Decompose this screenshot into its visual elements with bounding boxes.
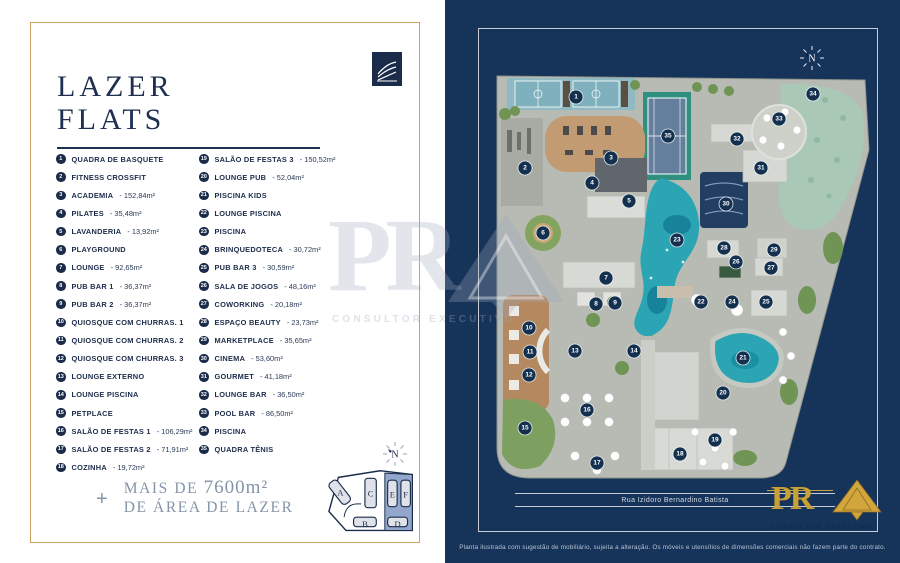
svg-text:34: 34 — [809, 91, 817, 98]
legend-number-badge: 21 — [199, 191, 209, 201]
legend-column-right: 19SALÃO DE FESTAS 3- 150,52m²20LOUNGE PU… — [199, 150, 369, 477]
legend-item: 9PUB BAR 2- 36,37m² — [56, 295, 199, 313]
area-claim-prefix: MAIS DE — [124, 480, 204, 497]
map-marker-29: 29 — [767, 243, 781, 257]
svg-text:11: 11 — [527, 349, 534, 356]
svg-text:35: 35 — [664, 133, 672, 140]
legend-item: 26SALA DE JOGOS- 48,16m² — [199, 277, 369, 295]
legend-label: PLAYGROUND — [72, 245, 126, 254]
legend-item: 15PETPLACE — [56, 404, 199, 422]
legend-item: 35QUADRA TÊNIS — [199, 440, 369, 458]
brand-logo — [372, 52, 402, 86]
legend-item: 6PLAYGROUND — [56, 241, 199, 259]
map-marker-24: 24 — [725, 295, 739, 309]
legend-item: 20LOUNGE PUB- 52,04m² — [199, 168, 369, 186]
legend-area-value: - 35,65m² — [280, 336, 312, 345]
svg-text:9: 9 — [613, 300, 617, 307]
legend-item: 30CINEMA- 53,60m² — [199, 350, 369, 368]
legend-column-left: 1QUADRA DE BASQUETE2FITNESS CROSSFIT3ACA… — [56, 150, 199, 477]
legend-number-badge: 24 — [199, 245, 209, 255]
legend-area-value: - 30,72m² — [289, 245, 321, 254]
legend-area-value: - 23,73m² — [287, 318, 319, 327]
legend-label: LOUNGE — [72, 263, 105, 272]
legend-area-value: - 92,65m² — [111, 263, 143, 272]
map-marker-27: 27 — [764, 261, 778, 275]
legend-item: 10QUIOSQUE COM CHURRAS. 1 — [56, 313, 199, 331]
legend-item: 1QUADRA DE BASQUETE — [56, 150, 199, 168]
legend-item: 24BRINQUEDOTECA- 30,72m² — [199, 241, 369, 259]
legend-area-value: - 48,16m² — [284, 282, 316, 291]
legend-label: BRINQUEDOTECA — [215, 245, 284, 254]
legend-label: FITNESS CROSSFIT — [72, 173, 147, 182]
title-divider — [57, 147, 320, 149]
plus-sign: + — [96, 488, 108, 511]
map-marker-1: 1 — [569, 90, 583, 104]
legend-area-value: - 53,60m² — [251, 354, 283, 363]
legend-number-badge: 15 — [56, 408, 66, 418]
legend-number-badge: 4 — [56, 209, 66, 219]
map-marker-15: 15 — [518, 421, 532, 435]
legend-number-badge: 8 — [56, 281, 66, 291]
legend-number-badge: 5 — [56, 227, 66, 237]
legend-number-badge: 23 — [199, 227, 209, 237]
legend-label: LOUNGE EXTERNO — [72, 372, 145, 381]
gold-brand-logo: PR CONSULTOR EXECUTIVO — [771, 480, 891, 538]
legend-label: PUB BAR 2 — [72, 300, 114, 309]
svg-text:21: 21 — [739, 355, 747, 362]
amenities-legend: 1QUADRA DE BASQUETE2FITNESS CROSSFIT3ACA… — [56, 150, 369, 477]
keyplan-block-d: D — [395, 519, 401, 529]
legend-number-badge: 3 — [56, 191, 66, 201]
legend-area-value: - 152,84m² — [119, 191, 155, 200]
svg-text:24: 24 — [728, 299, 736, 306]
legend-number-badge: 27 — [199, 299, 209, 309]
keyplan-block-e: E — [390, 489, 395, 499]
legend-item: 14LOUNGE PISCINA — [56, 386, 199, 404]
legend-item: 32LOUNGE BAR- 36,50m² — [199, 386, 369, 404]
legend-label: SALÃO DE FESTAS 1 — [72, 427, 151, 436]
map-marker-23: 23 — [670, 233, 684, 247]
map-marker-11: 11 — [523, 345, 537, 359]
legend-item: 17SALÃO DE FESTAS 2- 71,91m² — [56, 440, 199, 458]
legend-number-badge: 7 — [56, 263, 66, 273]
legend-label: PISCINA — [215, 427, 247, 436]
compass-icon-left: N — [382, 441, 408, 467]
map-marker-25: 25 — [759, 295, 773, 309]
svg-text:5: 5 — [627, 198, 631, 205]
legend-area-value: - 36,50m² — [273, 390, 305, 399]
svg-text:4: 4 — [590, 180, 594, 187]
gold-logo-subtext: CONSULTOR EXECUTIVO — [771, 524, 889, 531]
area-claim-line2: DE ÁREA DE LAZER — [124, 498, 294, 517]
legend-item: 5LAVANDERIA- 13,92m² — [56, 223, 199, 241]
svg-text:27: 27 — [767, 265, 775, 272]
legend-area-value: - 30,59m² — [263, 263, 295, 272]
svg-text:3: 3 — [609, 155, 613, 162]
map-marker-31: 31 — [754, 161, 768, 175]
svg-text:16: 16 — [583, 407, 591, 414]
legend-item: 27COWORKING- 20,18m² — [199, 295, 369, 313]
legend-label: PUB BAR 3 — [215, 263, 257, 272]
map-marker-21: 21 — [736, 351, 750, 365]
svg-text:22: 22 — [697, 299, 705, 306]
legend-number-badge: 10 — [56, 318, 66, 328]
legend-area-value: - 86,50m² — [261, 409, 293, 418]
map-marker-30: 30 — [719, 197, 733, 211]
legend-label: COZINHA — [72, 463, 107, 472]
legend-item: 16SALÃO DE FESTAS 1- 106,29m² — [56, 422, 199, 440]
svg-text:6: 6 — [541, 230, 545, 237]
compass-north-label: N — [391, 450, 398, 461]
svg-text:13: 13 — [571, 348, 579, 355]
page-title: LAZER FLATS — [57, 70, 174, 136]
legend-area-value: - 52,04m² — [272, 173, 304, 182]
legend-item: 8PUB BAR 1- 36,37m² — [56, 277, 199, 295]
map-marker-12: 12 — [522, 368, 536, 382]
legend-number-badge: 16 — [56, 426, 66, 436]
legend-label: PISCINA — [215, 227, 247, 236]
legend-label: ESPAÇO BEAUTY — [215, 318, 281, 327]
legend-area-value: - 13,92m² — [127, 227, 159, 236]
legend-area-value: - 36,37m² — [120, 300, 152, 309]
legend-number-badge: 13 — [56, 372, 66, 382]
keyplan-block-b: B — [362, 519, 368, 529]
legend-item: 13LOUNGE EXTERNO — [56, 368, 199, 386]
keyplan-block-c: C — [368, 488, 374, 498]
legend-label: LOUNGE BAR — [215, 390, 267, 399]
legend-area-value: - 106,29m² — [157, 427, 193, 436]
legend-item: 3ACADEMIA- 152,84m² — [56, 186, 199, 204]
legend-item: 28ESPAÇO BEAUTY- 23,73m² — [199, 313, 369, 331]
legend-item: 19SALÃO DE FESTAS 3- 150,52m² — [199, 150, 369, 168]
svg-text:26: 26 — [732, 259, 740, 266]
map-marker-20: 20 — [716, 386, 730, 400]
legend-label: SALÃO DE FESTAS 3 — [215, 155, 294, 164]
legend-item: 22LOUNGE PISCINA — [199, 204, 369, 222]
map-marker-19: 19 — [708, 433, 722, 447]
svg-text:10: 10 — [525, 325, 533, 332]
svg-text:1: 1 — [574, 94, 578, 101]
legend-panel: LAZER FLATS 1QUADRA DE BASQUETE2FITNESS … — [0, 0, 445, 563]
legend-item: 4PILATES- 35,48m² — [56, 204, 199, 222]
map-marker-32: 32 — [730, 132, 744, 146]
area-claim-text: MAIS DE 7600m² DE ÁREA DE LAZER — [124, 478, 294, 517]
wave-logo-icon — [372, 52, 402, 86]
legend-label: PUB BAR 1 — [72, 282, 114, 291]
legend-item: 12QUIOSQUE COM CHURRAS. 3 — [56, 350, 199, 368]
svg-text:31: 31 — [757, 165, 765, 172]
legend-label: QUIOSQUE COM CHURRAS. 3 — [72, 354, 184, 363]
map-marker-8: 8 — [589, 297, 603, 311]
legend-item: 25PUB BAR 3- 30,59m² — [199, 259, 369, 277]
legend-number-badge: 20 — [199, 172, 209, 182]
svg-text:20: 20 — [719, 390, 727, 397]
map-marker-33: 33 — [772, 112, 786, 126]
legend-number-badge: 19 — [199, 154, 209, 164]
legend-item: 33POOL BAR- 86,50m² — [199, 404, 369, 422]
svg-text:12: 12 — [525, 372, 533, 379]
map-marker-9: 9 — [608, 296, 622, 310]
legend-label: QUIOSQUE COM CHURRAS. 1 — [72, 318, 184, 327]
page-title-line1: LAZER — [57, 70, 174, 103]
legend-label: PILATES — [72, 209, 104, 218]
legend-number-badge: 11 — [56, 336, 66, 346]
map-marker-26: 26 — [729, 255, 743, 269]
legend-number-badge: 30 — [199, 354, 209, 364]
legend-number-badge: 12 — [56, 354, 66, 364]
svg-text:19: 19 — [711, 437, 719, 444]
keyplan-block-f: F — [403, 489, 408, 499]
legend-number-badge: 26 — [199, 281, 209, 291]
legend-number-badge: 32 — [199, 390, 209, 400]
legend-label: COWORKING — [215, 300, 265, 309]
map-marker-13: 13 — [568, 344, 582, 358]
legend-item: 23PISCINA — [199, 223, 369, 241]
legend-label: POOL BAR — [215, 409, 256, 418]
svg-text:7: 7 — [604, 275, 608, 282]
legend-number-badge: 29 — [199, 336, 209, 346]
svg-text:2: 2 — [523, 165, 527, 172]
legend-area-value: - 71,91m² — [157, 445, 189, 454]
map-marker-7: 7 — [599, 271, 613, 285]
legend-item: 18COZINHA- 19,72m² — [56, 458, 199, 476]
legend-area-value: - 20,18m² — [270, 300, 302, 309]
legend-area-value: - 19,72m² — [113, 463, 145, 472]
legend-number-badge: 9 — [56, 299, 66, 309]
area-claim-line1: MAIS DE 7600m² — [124, 478, 294, 498]
area-claim-value: 7600m² — [204, 477, 268, 498]
svg-text:17: 17 — [593, 460, 601, 467]
legend-area-value: - 35,48m² — [110, 209, 142, 218]
legend-label: SALA DE JOGOS — [215, 282, 279, 291]
legend-item: 31GOURMET- 41,18m² — [199, 368, 369, 386]
legend-item: 21PISCINA KIDS — [199, 186, 369, 204]
map-marker-17: 17 — [590, 456, 604, 470]
svg-text:23: 23 — [673, 237, 681, 244]
legend-label: MARKETPLACE — [215, 336, 274, 345]
map-marker-4: 4 — [585, 176, 599, 190]
svg-text:18: 18 — [676, 451, 684, 458]
gold-logo-letters: PR — [771, 480, 812, 518]
gold-pyramid-icon — [831, 478, 883, 524]
svg-text:33: 33 — [775, 116, 783, 123]
masterplan-panel: N — [445, 0, 900, 563]
map-marker-6: 6 — [536, 226, 550, 240]
legend-label: SALÃO DE FESTAS 2 — [72, 445, 151, 454]
legend-number-badge: 6 — [56, 245, 66, 255]
legend-label: ACADEMIA — [72, 191, 114, 200]
map-marker-5: 5 — [622, 194, 636, 208]
map-marker-14: 14 — [627, 344, 641, 358]
legend-number-badge: 31 — [199, 372, 209, 382]
legend-area-value: - 36,37m² — [120, 282, 152, 291]
legend-number-badge: 22 — [199, 209, 209, 219]
map-marker-22: 22 — [694, 295, 708, 309]
svg-text:30: 30 — [722, 201, 730, 208]
map-marker-18: 18 — [673, 447, 687, 461]
keyplan-diagram: A B C D E F — [325, 466, 420, 538]
legend-number-badge: 18 — [56, 463, 66, 473]
legend-area-value: - 41,18m² — [260, 372, 292, 381]
legend-label: QUADRA DE BASQUETE — [72, 155, 164, 164]
legend-label: CINEMA — [215, 354, 246, 363]
legend-label: LOUNGE PUB — [215, 173, 267, 182]
svg-text:8: 8 — [594, 301, 598, 308]
map-marker-10: 10 — [522, 321, 536, 335]
map-marker-35: 35 — [661, 129, 675, 143]
page-title-line2: FLATS — [57, 103, 174, 136]
map-marker-16: 16 — [580, 403, 594, 417]
legend-item: 2FITNESS CROSSFIT — [56, 168, 199, 186]
svg-text:15: 15 — [521, 425, 529, 432]
map-marker-3: 3 — [604, 151, 618, 165]
legend-item: 34PISCINA — [199, 422, 369, 440]
legend-area-value: - 150,52m² — [300, 155, 336, 164]
legend-number-badge: 2 — [56, 172, 66, 182]
legend-number-badge: 35 — [199, 445, 209, 455]
legend-number-badge: 28 — [199, 318, 209, 328]
disclaimer-text: Planta ilustrada com sugestão de mobiliá… — [455, 544, 890, 551]
legend-number-badge: 25 — [199, 263, 209, 273]
svg-text:29: 29 — [770, 247, 778, 254]
legend-number-badge: 17 — [56, 445, 66, 455]
legend-label: PETPLACE — [72, 409, 113, 418]
legend-label: QUADRA TÊNIS — [215, 445, 274, 454]
svg-text:32: 32 — [733, 136, 741, 143]
svg-text:25: 25 — [762, 299, 770, 306]
legend-label: PISCINA KIDS — [215, 191, 267, 200]
legend-label: GOURMET — [215, 372, 255, 381]
map-marker-34: 34 — [806, 87, 820, 101]
legend-number-badge: 1 — [56, 154, 66, 164]
legend-label: QUIOSQUE COM CHURRAS. 2 — [72, 336, 184, 345]
svg-text:28: 28 — [720, 245, 728, 252]
legend-item: 11QUIOSQUE COM CHURRAS. 2 — [56, 331, 199, 349]
legend-number-badge: 14 — [56, 390, 66, 400]
area-claim: + MAIS DE 7600m² DE ÁREA DE LAZER — [96, 478, 294, 517]
legend-label: LAVANDERIA — [72, 227, 122, 236]
keyplan-block-a: A — [337, 487, 344, 497]
legend-number-badge: 33 — [199, 408, 209, 418]
legend-label: LOUNGE PISCINA — [215, 209, 282, 218]
legend-item: 7LOUNGE- 92,65m² — [56, 259, 199, 277]
legend-label: LOUNGE PISCINA — [72, 390, 139, 399]
map-marker-28: 28 — [717, 241, 731, 255]
svg-text:14: 14 — [630, 348, 638, 355]
legend-item: 29MARKETPLACE- 35,65m² — [199, 331, 369, 349]
map-marker-2: 2 — [518, 161, 532, 175]
brochure-page: LAZER FLATS 1QUADRA DE BASQUETE2FITNESS … — [0, 0, 900, 563]
legend-number-badge: 34 — [199, 426, 209, 436]
